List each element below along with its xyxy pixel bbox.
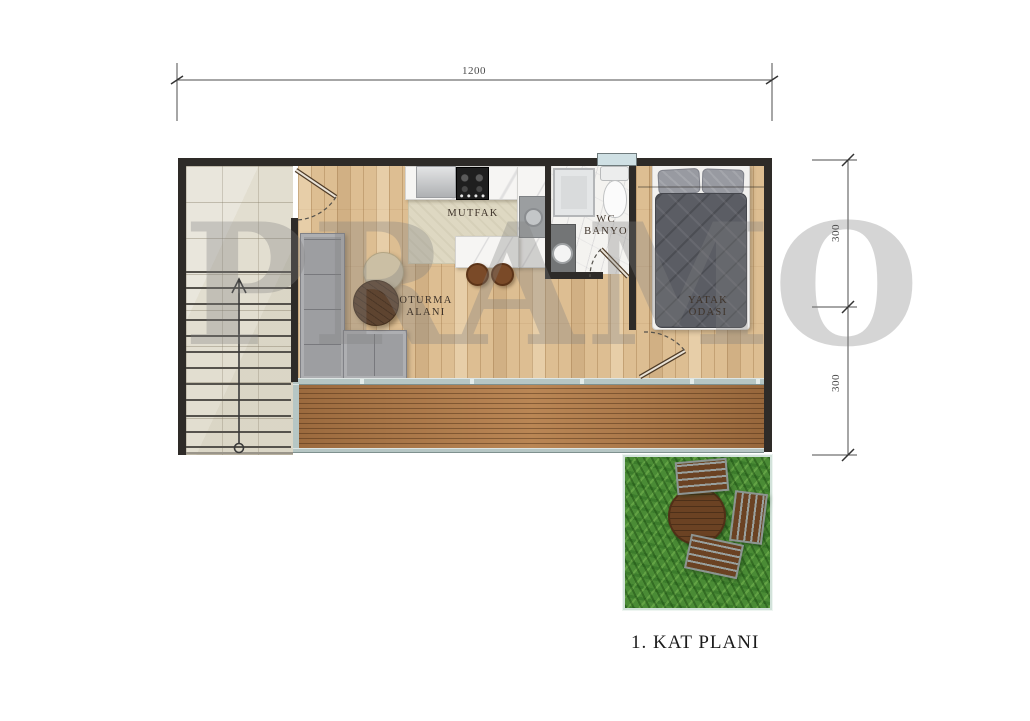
plan-title: 1. KAT PLANI	[631, 632, 759, 654]
label-kitchen: MUTFAK	[423, 208, 523, 220]
wall-bathroom-bottom	[545, 272, 603, 279]
kitchen-stool	[466, 263, 489, 286]
stair-hall-floor	[186, 166, 293, 455]
deck-left-rail	[293, 384, 299, 450]
label-bedroom-line2: ODASI	[658, 307, 758, 319]
garden-chair	[729, 490, 768, 545]
shower	[553, 168, 595, 217]
label-wc-line1: WC	[556, 214, 656, 226]
bed-pillow	[657, 168, 700, 195]
wall-bathroom-bedroom-partition	[629, 158, 636, 330]
label-living-area: OTURMA ALANI	[376, 295, 476, 319]
terrace-deck	[299, 384, 764, 449]
wall-top-right	[635, 158, 772, 166]
garden-chair	[675, 458, 730, 495]
bathroom-basin	[552, 243, 573, 264]
label-living-line2: ALANI	[376, 307, 476, 319]
bathroom-window	[597, 153, 637, 166]
wall-top-left	[178, 158, 597, 166]
toilet-bowl	[603, 180, 627, 218]
deck-bottom-rail	[293, 448, 764, 453]
dimension-top-value: 1200	[444, 65, 504, 77]
toilet-cistern	[600, 166, 629, 181]
stairs-bottom-edge	[186, 452, 293, 454]
label-wc-bathroom: WC BANYO	[556, 214, 656, 238]
dimension-right-upper-value: 300	[830, 210, 842, 256]
kitchen-sink-basin	[524, 208, 543, 227]
sofa-section-vertical	[300, 233, 345, 380]
wall-right	[764, 158, 772, 452]
wall-bathroom-left	[545, 166, 551, 274]
floor-plan-canvas: PRAMO 1200 300 300 MUTFAK WC BANYO OTURM…	[0, 0, 1030, 721]
dimension-line-right	[812, 154, 857, 461]
kitchen-island	[455, 236, 519, 268]
bed-pillow	[702, 168, 745, 194]
label-bedroom: YATAK ODASI	[658, 295, 758, 319]
kitchen-stool	[491, 263, 514, 286]
wall-stair-partition	[291, 218, 298, 382]
fridge	[416, 166, 456, 198]
sofa-section-horizontal	[343, 330, 407, 380]
label-wc-line2: BANYO	[556, 226, 656, 238]
label-living-line1: OTURMA	[376, 295, 476, 307]
terrace-glass-balustrade	[293, 378, 764, 385]
label-kitchen-text: MUTFAK	[447, 208, 498, 219]
wall-left	[178, 158, 186, 455]
stove-cooktop	[456, 167, 489, 200]
dimension-right-lower-value: 300	[830, 360, 842, 406]
label-bedroom-line1: YATAK	[658, 295, 758, 307]
